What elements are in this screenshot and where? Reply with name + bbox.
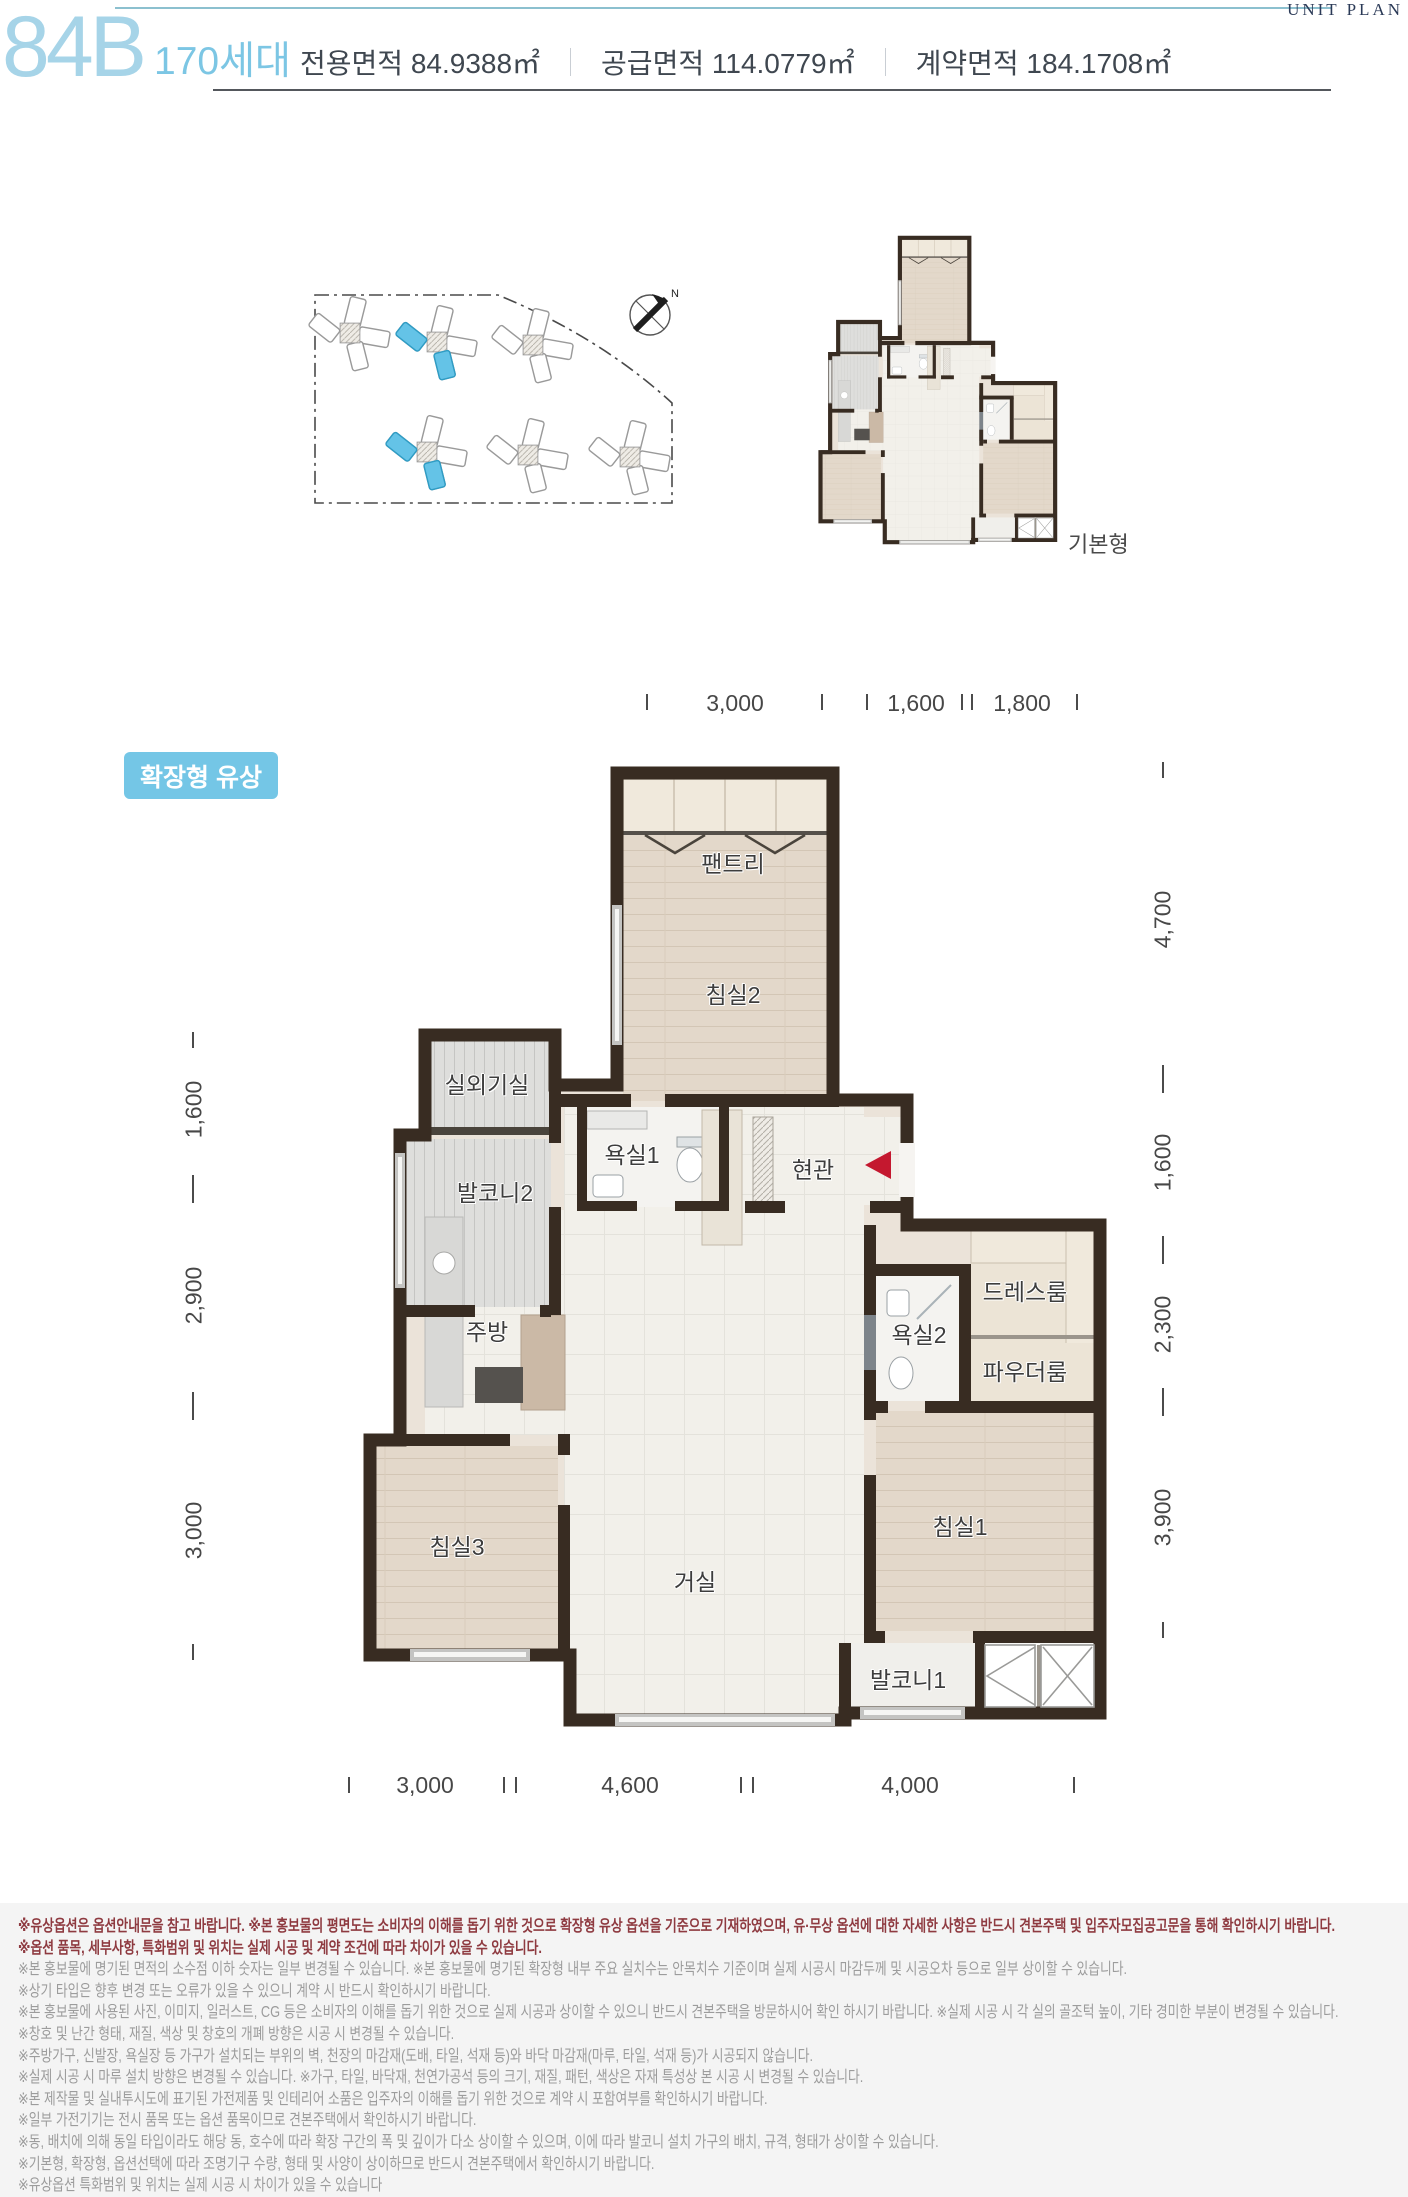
disclaimer-line: ※유상옵션은 옵션안내문을 참고 바랍니다. ※본 홍보물의 평면도는 소비자의… [18, 1916, 1130, 1938]
room-label-balcony1: 발코니1 [833, 1661, 983, 1695]
disclaimer-line: ※본 홍보물에 사용된 사진, 이미지, 일러스트, CG 등은 소비자의 이해… [18, 2002, 1130, 2024]
disclaimer-line: ※본 제작물 및 실내투시도에 표기된 가전제품 및 인테리어 소품은 입주자의… [18, 2089, 1130, 2111]
disclaimer-line: ※상기 타입은 향후 변경 또는 오류가 있을 수 있으니 계약 시 반드시 확… [18, 1981, 1130, 2003]
room-label-bedroom2: 침실2 [658, 976, 808, 1010]
dim-tick [192, 1187, 194, 1203]
disclaimer-line: ※일부 가전기기는 전시 품목 또는 옵션 품목이므로 견본주택에서 확인하시기… [18, 2110, 1130, 2132]
area-contract: 계약면적 184.1708㎡ [916, 42, 1172, 82]
header-rule-top [115, 7, 1331, 9]
dim-tick [192, 1404, 194, 1420]
svg-text:N: N [671, 288, 679, 300]
dim-tick [1162, 1248, 1164, 1264]
dim-tick [740, 1777, 742, 1793]
header-rule-bottom [213, 89, 1331, 91]
dim-tick [1162, 762, 1164, 778]
dimension-label: 2,300 [1150, 1265, 1177, 1385]
dimension-label: 2,900 [181, 1236, 208, 1356]
disclaimer-line: ※기본형, 확장형, 옵션선택에 따라 조명기구 수량, 형태 및 사양이 상이… [18, 2154, 1130, 2176]
dimension-label: 3,000 [365, 1772, 485, 1799]
main-floorplan: 팬트리 침실2 실외기실 발코니2 욕실1 현관 주방 드레스룸 욕실2 파우더… [325, 755, 1115, 1735]
room-label-balcony2: 발코니2 [420, 1174, 570, 1208]
disclaimer-line: ※본 홍보물에 명기된 면적의 소수점 이하 숫자는 일부 변경될 수 있습니다… [18, 1959, 1130, 1981]
compass-icon: N [630, 288, 679, 335]
disclaimer-line: ※주방가구, 신발장, 욕실장 등 가구가 설치되는 부위의 벽, 천장의 마감… [18, 2046, 1130, 2068]
area-exclusive: 전용면적 84.9388㎡ [300, 42, 540, 82]
dimension-label: 4,000 [850, 1772, 970, 1799]
area-supply: 공급면적 114.0779㎡ [601, 42, 855, 82]
households-count: 170세대 [154, 30, 291, 86]
dimension-label: 3,000 [675, 690, 795, 717]
disclaimer-line: ※유상옵션 특화범위 및 위치는 실제 시공 시 차이가 있을 수 있습니다 [18, 2175, 1130, 2197]
dim-tick [752, 1777, 754, 1793]
basic-type-label: 기본형 [1068, 527, 1129, 559]
unit-plan-caption: UNIT PLAN [1188, 0, 1403, 20]
room-label-powder-room: 파우더룸 [950, 1353, 1100, 1387]
unit-code: 84B [2, 4, 143, 90]
dim-tick [1076, 694, 1078, 710]
room-label-bedroom1: 침실1 [885, 1508, 1035, 1542]
area-figures: 전용면적 84.9388㎡ 공급면적 114.0779㎡ 계약면적 184.17… [300, 42, 1171, 82]
dim-tick [821, 694, 823, 710]
room-label-entrance: 현관 [738, 1151, 888, 1185]
room-label-dressroom: 드레스룸 [950, 1273, 1100, 1307]
dimension-label: 1,600 [856, 690, 976, 717]
room-label-bathroom2: 욕실2 [844, 1316, 994, 1350]
dimension-label: 4,700 [1150, 860, 1177, 980]
site-plan-sketch: N [300, 285, 690, 520]
dim-tick [646, 694, 648, 710]
dimension-label: 4,600 [570, 1772, 690, 1799]
dimension-label: 3,000 [181, 1471, 208, 1591]
separator [570, 48, 571, 76]
disclaimer: ※유상옵션은 옵션안내문을 참고 바랍니다. ※본 홍보물의 평면도는 소비자의… [0, 1903, 1408, 2197]
dim-tick [1162, 1077, 1164, 1093]
site-boundary [315, 295, 672, 503]
dim-tick [348, 1777, 350, 1793]
dimension-label: 3,900 [1150, 1458, 1177, 1578]
room-label-bedroom3: 침실3 [382, 1528, 532, 1562]
expansion-type-badge: 확장형 유상 [124, 752, 278, 799]
dimension-label: 1,600 [1150, 1103, 1177, 1223]
room-label-pantry: 팬트리 [658, 845, 808, 879]
disclaimer-line: ※옵션 품목, 세부사항, 특화범위 및 위치는 실제 시공 및 계약 조건에 … [18, 1938, 1130, 1960]
dimension-label: 1,600 [181, 1050, 208, 1170]
dim-tick [1162, 1622, 1164, 1638]
dim-tick [515, 1777, 517, 1793]
dim-tick [1162, 1400, 1164, 1416]
dim-tick [1073, 1777, 1075, 1793]
room-label-ac-unit-room: 실외기실 [412, 1066, 562, 1100]
room-label-living-room: 거실 [620, 1563, 770, 1597]
disclaimer-line: ※실제 시공 시 마루 설치 방향은 변경될 수 있습니다. ※가구, 타일, … [18, 2067, 1130, 2089]
dim-tick [192, 1644, 194, 1660]
dim-tick [503, 1777, 505, 1793]
dim-tick [192, 1032, 194, 1048]
room-label-kitchen: 주방 [412, 1313, 562, 1347]
separator [885, 48, 886, 76]
disclaimer-line: ※창호 및 난간 형태, 재질, 색상 및 창호의 개폐 방향은 시공 시 변경… [18, 2024, 1130, 2046]
room-label-bathroom1: 욕실1 [557, 1136, 707, 1170]
basic-type-mini-plan [806, 232, 1060, 547]
disclaimer-line: ※동, 배치에 의해 동일 타입이라도 해당 동, 호수에 따라 확장 구간의 … [18, 2132, 1130, 2154]
dimension-label: 1,800 [962, 690, 1082, 717]
